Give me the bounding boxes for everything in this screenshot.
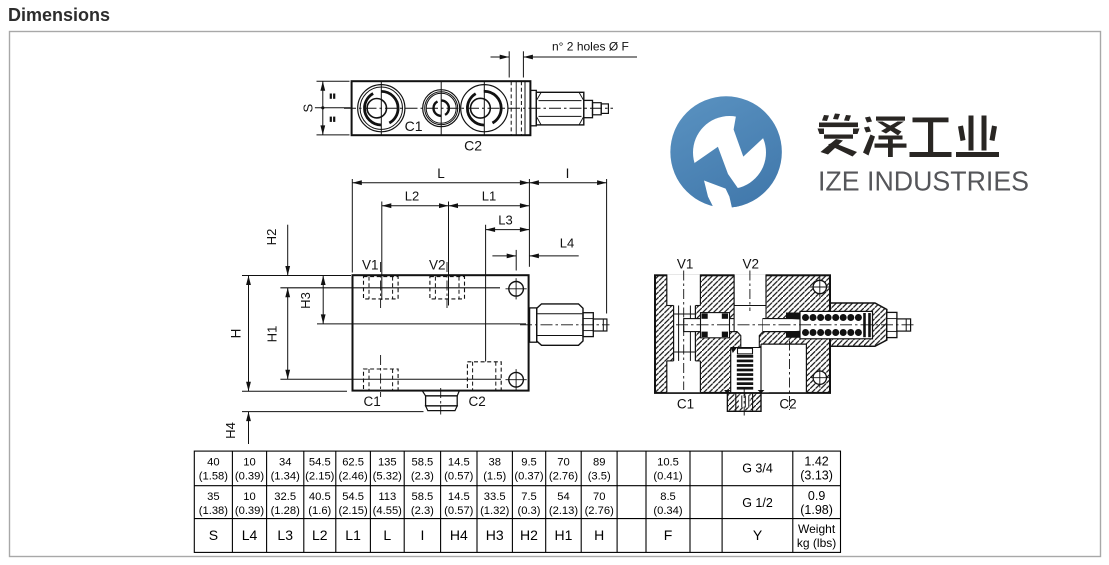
svg-text:(0.57): (0.57) <box>444 470 473 482</box>
svg-text:C1: C1 <box>364 394 381 409</box>
svg-text:35: 35 <box>207 491 219 503</box>
svg-text:(2.46): (2.46) <box>338 470 367 482</box>
svg-text:(0.3): (0.3) <box>517 505 540 517</box>
svg-text:(1.38): (1.38) <box>199 505 228 517</box>
svg-text:S: S <box>209 527 218 543</box>
svg-text:IZE INDUSTRIES: IZE INDUSTRIES <box>818 166 1029 197</box>
svg-text:n° 2 holes Ø F: n° 2 holes Ø F <box>552 40 629 54</box>
svg-text:L3: L3 <box>498 212 512 227</box>
svg-text:8.5: 8.5 <box>660 491 676 503</box>
svg-text:58.5: 58.5 <box>412 456 434 468</box>
svg-text:L4: L4 <box>560 236 574 251</box>
svg-text:9.5: 9.5 <box>521 456 537 468</box>
svg-text:(3.5): (3.5) <box>588 470 611 482</box>
svg-text:H1: H1 <box>555 527 573 543</box>
svg-text:H: H <box>594 527 604 543</box>
svg-text:Weight: Weight <box>798 522 836 536</box>
svg-text:135: 135 <box>378 456 397 468</box>
svg-text:C1: C1 <box>677 397 694 412</box>
svg-text:33.5: 33.5 <box>484 491 506 503</box>
svg-text:(0.34): (0.34) <box>653 505 682 517</box>
svg-text:C2: C2 <box>469 394 486 409</box>
svg-text:I: I <box>566 166 570 181</box>
svg-text:C2: C2 <box>464 138 482 154</box>
svg-text:H3: H3 <box>486 527 504 543</box>
svg-text:(2.15): (2.15) <box>305 470 334 482</box>
svg-text:89: 89 <box>593 456 605 468</box>
svg-text:V1: V1 <box>362 258 379 273</box>
svg-text:(1.28): (1.28) <box>271 505 300 517</box>
svg-text:H2: H2 <box>264 229 279 246</box>
svg-text:V1: V1 <box>677 257 694 272</box>
svg-text:L3: L3 <box>277 527 293 543</box>
svg-text:(2.13): (2.13) <box>549 505 578 517</box>
svg-text:34: 34 <box>279 456 291 468</box>
svg-text:kg (lbs): kg (lbs) <box>797 536 836 550</box>
svg-text:70: 70 <box>557 456 569 468</box>
svg-text:(1.58): (1.58) <box>199 470 228 482</box>
svg-text:113: 113 <box>378 491 396 503</box>
svg-text:32.5: 32.5 <box>274 491 296 503</box>
svg-text:C1: C1 <box>405 118 423 134</box>
svg-text:L2: L2 <box>312 527 328 543</box>
svg-text:V2: V2 <box>429 258 446 273</box>
svg-text:14.5: 14.5 <box>448 491 470 503</box>
svg-text:38: 38 <box>488 456 500 468</box>
svg-text:Dimensions: Dimensions <box>8 5 110 25</box>
svg-text:0.9: 0.9 <box>808 489 825 503</box>
svg-text:(0.57): (0.57) <box>444 505 473 517</box>
svg-text:(3.13): (3.13) <box>800 468 833 482</box>
svg-text:Y: Y <box>753 527 763 543</box>
svg-text:H2: H2 <box>520 527 538 543</box>
svg-text:54.5: 54.5 <box>309 456 331 468</box>
svg-text:(0.39): (0.39) <box>235 470 264 482</box>
svg-text:62.5: 62.5 <box>342 456 364 468</box>
svg-text:(2.3): (2.3) <box>411 470 434 482</box>
svg-text:L: L <box>383 527 391 543</box>
svg-text:(5.32): (5.32) <box>373 470 402 482</box>
svg-text:G 3/4: G 3/4 <box>742 462 773 476</box>
svg-text:(2.3): (2.3) <box>411 505 434 517</box>
svg-text:L1: L1 <box>345 527 361 543</box>
svg-text:10: 10 <box>243 456 255 468</box>
svg-text:L: L <box>437 166 445 181</box>
svg-text:(0.39): (0.39) <box>235 505 264 517</box>
svg-text:(2.76): (2.76) <box>549 470 578 482</box>
svg-text:40: 40 <box>207 456 219 468</box>
svg-text:10: 10 <box>243 491 255 503</box>
svg-text:L4: L4 <box>242 527 258 543</box>
svg-text:54.5: 54.5 <box>342 491 364 503</box>
svg-text:V2: V2 <box>743 257 760 272</box>
svg-text:(1.98): (1.98) <box>800 503 833 517</box>
svg-text:7.5: 7.5 <box>521 491 537 503</box>
svg-text:58.5: 58.5 <box>412 491 434 503</box>
svg-text:I: I <box>420 527 424 543</box>
svg-text:(0.37): (0.37) <box>514 470 543 482</box>
svg-text:F: F <box>664 527 673 543</box>
svg-text:1.42: 1.42 <box>804 454 828 468</box>
svg-text:(2.15): (2.15) <box>338 505 367 517</box>
svg-text:(4.55): (4.55) <box>373 505 402 517</box>
svg-text:(1.5): (1.5) <box>483 470 506 482</box>
svg-text:(0.41): (0.41) <box>653 470 682 482</box>
svg-text:L1: L1 <box>482 189 496 204</box>
svg-text:70: 70 <box>593 491 605 503</box>
svg-text:10.5: 10.5 <box>657 456 679 468</box>
svg-text:G 1/2: G 1/2 <box>742 496 773 510</box>
svg-text:(2.76): (2.76) <box>585 505 614 517</box>
svg-text:H4: H4 <box>223 422 238 439</box>
svg-text:40.5: 40.5 <box>309 491 331 503</box>
svg-text:C2: C2 <box>779 397 796 412</box>
svg-text:H4: H4 <box>450 527 468 543</box>
svg-text:H3: H3 <box>298 292 313 309</box>
svg-text:(1.6): (1.6) <box>308 505 331 517</box>
svg-text:H1: H1 <box>265 326 280 343</box>
svg-text:L2: L2 <box>405 189 419 204</box>
svg-text:H: H <box>229 329 244 339</box>
svg-text:54: 54 <box>557 491 569 503</box>
svg-text:S: S <box>301 104 316 113</box>
svg-text:(1.34): (1.34) <box>271 470 300 482</box>
svg-text:14.5: 14.5 <box>448 456 470 468</box>
svg-text:(1.32): (1.32) <box>480 505 509 517</box>
